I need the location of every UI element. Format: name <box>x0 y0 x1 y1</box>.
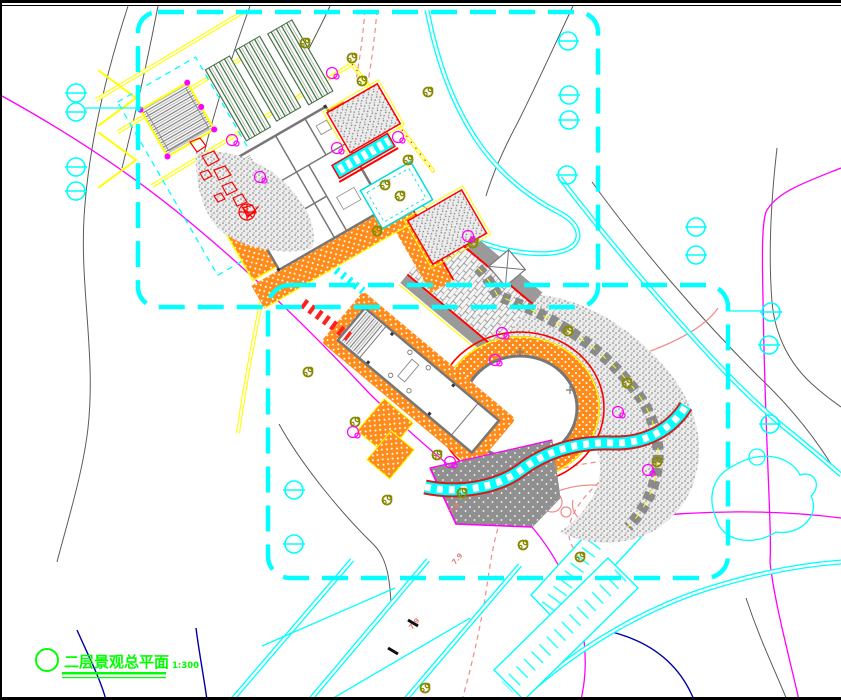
pavilion <box>136 79 218 161</box>
drawing-title: 二层景观总平面 <box>64 653 169 671</box>
site-plan-drawing: 7.9 7.9 7.9 二层景观总平面 1:300 <box>0 0 841 700</box>
title-circle <box>36 649 58 671</box>
yellow-chevron <box>98 132 136 188</box>
upper-complex <box>118 0 502 381</box>
elevation-label: 7.9 <box>450 552 464 567</box>
cad-canvas: 7.9 7.9 7.9 二层景观总平面 1:300 <box>0 0 841 700</box>
stair-ticks-cyan <box>336 270 363 291</box>
title-block: 二层景观总平面 1:300 <box>36 649 199 678</box>
drawing-scale: 1:300 <box>172 661 199 671</box>
